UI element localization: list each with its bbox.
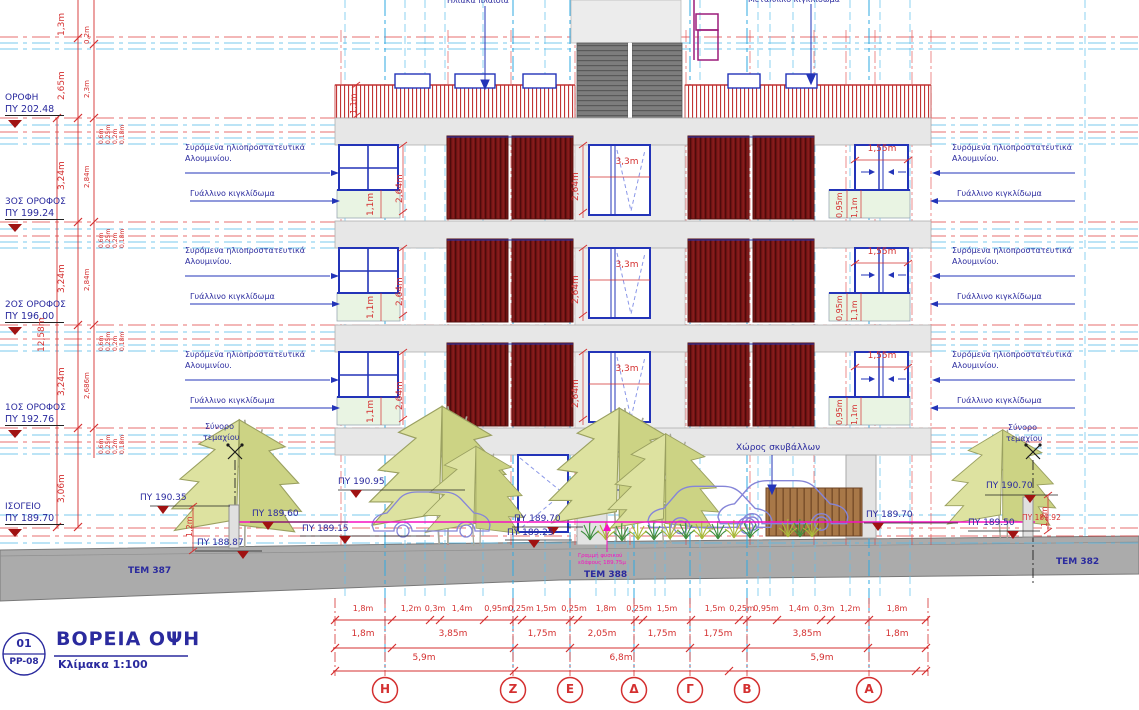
spot-level: ΠΥ 190.95 (338, 478, 385, 487)
dim: 0,95m (753, 605, 779, 613)
dim-yard: 1,2m (186, 516, 194, 537)
dim: 1,8m (885, 630, 908, 639)
dim: 3,85m (793, 630, 822, 639)
level-elevation: ΠΥ 202.48 (5, 105, 64, 116)
dim-right-width: 1,55m (868, 145, 897, 154)
dim: 2,05m (588, 630, 617, 639)
dim: 0,25m (561, 605, 587, 613)
level-elevation: ΠΥ 199.24 (5, 209, 64, 220)
dim: 1,2m (401, 605, 422, 613)
annotation-sliding-louvers: Συρόμενα ηλιοπροστατευτικά (185, 247, 305, 255)
dim-center-width: 3,3m (615, 365, 638, 374)
dim: 1,8m (887, 605, 908, 613)
plot-label: ΤΕΜ 388 (584, 571, 627, 580)
annotation-glass-railing: Γυάλλινο κιγκλίδωμα (957, 397, 1042, 405)
boundary-label: Σύνορο (205, 423, 234, 431)
annotation-sliding-louvers: Συρόμενα ηλιοπροστατευτικά (185, 144, 305, 152)
dim-label: 3,06m (58, 474, 67, 503)
dim-label: 0,2m (84, 26, 91, 44)
ground-note: εδάφους 189.75μ (578, 561, 626, 567)
dim: 1,2m (840, 605, 861, 613)
sheet-code: PP-08 (9, 658, 38, 667)
level-name: ΙΣΟΓΕΙΟ (5, 503, 41, 512)
dim: 1,8m (353, 605, 374, 613)
axis-label: Α (857, 683, 881, 696)
level-name: 1ΟΣ ΟΡΟΦΟΣ (5, 404, 66, 413)
elevation-sheet: ΟΡΟΦΗ ΠΥ 202.48 3ΟΣ ΟΡΟΦΟΣ ΠΥ 199.24 2ΟΣ… (0, 0, 1139, 710)
dim: 6,8m (609, 654, 632, 663)
dim-rail-height: 1,1m (851, 197, 859, 218)
dim-label: 2,686m (84, 372, 91, 399)
annotation-sliding-louvers: Αλουμινίου. (952, 258, 999, 266)
spot-level: ΠΥ 189.70 (866, 511, 913, 520)
slab-dim: 0,18m (120, 435, 126, 454)
dim-rail-height: 1,1m (851, 300, 859, 321)
boundary-label: τεμαχίου (1006, 435, 1042, 443)
axis-label: Ζ (501, 683, 525, 696)
spot-level: ΠΥ 189.25 (507, 529, 554, 538)
detail-number: 01 (16, 638, 31, 650)
dim: 0,25m (508, 605, 534, 613)
spot-level: ΠΥ 189.60 (252, 510, 299, 519)
annotation-sliding-louvers: Συρόμενα ηλιοπροστατευτικά (952, 144, 1072, 152)
dim: 1,5m (536, 605, 557, 613)
level-elevation: ΠΥ 192.76 (5, 415, 64, 426)
dim: 1,5m (705, 605, 726, 613)
annotation-metal-railing: Μεταλλικό κιγκλίδωμα (748, 0, 840, 4)
dim-window-height: 2,64m (396, 277, 405, 306)
spot-level: ΠΥ 190.35 (140, 494, 187, 503)
annotation-glass-railing: Γυάλλινο κιγκλίδωμα (190, 190, 275, 198)
slab-dim: 0,18m (120, 125, 126, 144)
annotation-sliding-louvers: Αλουμινίου. (952, 155, 999, 163)
axis-label: Γ (678, 683, 702, 696)
dim: 5,9m (810, 654, 833, 663)
dim-rail-height: 1,1m (367, 400, 376, 423)
annotation-sliding-louvers: Αλουμινίου. (952, 362, 999, 370)
level-name: ΟΡΟΦΗ (5, 94, 38, 103)
dim-center-width: 3,3m (615, 261, 638, 270)
boundary-label: Σύνορο (1008, 424, 1037, 432)
level-elevation: ΠΥ 196.00 (5, 312, 64, 323)
annotation-sliding-louvers: Συρόμενα ηλιοπροστατευτικά (952, 247, 1072, 255)
spot-level: ΠΥ 189.15 (302, 525, 349, 534)
spot-level: ΠΥ 189.70 (514, 515, 561, 524)
dim: 1,8m (351, 630, 374, 639)
annotation-garbage-area: Χώρος σκυβάλλων (736, 444, 820, 453)
dim-rail-height: 0,95m (836, 192, 844, 218)
dim-label: 3,24m (58, 367, 67, 396)
dim-center-height: 2,64m (572, 379, 581, 408)
plot-label: ΤΕΜ 387 (128, 567, 171, 576)
spot-level: ΠΥ 190.70 (986, 482, 1033, 491)
level-name: 3ΟΣ ΟΡΟΦΟΣ (5, 198, 66, 207)
slab-dim: 0,18m (120, 332, 126, 351)
dim-rail-height: 0,95m (836, 295, 844, 321)
dim: 1,75m (528, 630, 557, 639)
ground-note: Γραμμή φυσικού (578, 554, 622, 560)
dim-rail-height: 1,1m (851, 404, 859, 425)
dim-right-width: 1,55m (868, 352, 897, 361)
axis-label: Δ (622, 683, 646, 696)
dim: 3,85m (439, 630, 468, 639)
dim-yard: 1,2m (1041, 506, 1049, 527)
spot-level: ΠΥ 188.87 (197, 539, 244, 548)
dim: 0,25m (729, 605, 755, 613)
boundary-label: τεμαχίου (203, 434, 239, 442)
spot-level: ΠΥ 189.50 (968, 519, 1015, 528)
dim-total-label: 12,58m (38, 317, 47, 352)
level-name: 2ΟΣ ΟΡΟΦΟΣ (5, 301, 66, 310)
dim-right-width: 1,55m (868, 248, 897, 257)
dim-label: 2,3m (84, 80, 91, 98)
annotation-sliding-louvers: Αλουμινίου. (185, 155, 232, 163)
annotation-glass-railing: Γυάλλινο κιγκλίδωμα (957, 190, 1042, 198)
dim: 1,5m (657, 605, 678, 613)
dim-label: 2,84m (84, 269, 91, 291)
annotation-sliding-louvers: Αλουμινίου. (185, 362, 232, 370)
dim: 0,3m (425, 605, 446, 613)
dim-label: 1,3m (58, 13, 67, 36)
dim: 1,75m (704, 630, 733, 639)
dim-label: 2,65m (58, 71, 67, 100)
roof-railing-height: 1,1m (350, 93, 358, 114)
dim-center-width: 3,3m (615, 158, 638, 167)
dim: 1,8m (596, 605, 617, 613)
dim-label: 2,84m (84, 166, 91, 188)
plot-label: ΤΕΜ 382 (1056, 558, 1099, 567)
axis-label: Β (735, 683, 759, 696)
dim-rail-height: 1,1m (367, 193, 376, 216)
annotation-glass-railing: Γυάλλινο κιγκλίδωμα (957, 293, 1042, 301)
dim: 1,75m (648, 630, 677, 639)
dim: 1,4m (789, 605, 810, 613)
dim-rail-height: 1,1m (367, 296, 376, 319)
level-elevation: ΠΥ 189.70 (5, 514, 64, 525)
drawing-title: ΒΟΡΕΙΑ ΟΨΗ (56, 630, 200, 650)
dim-window-height: 2,64m (396, 381, 405, 410)
floor-level-markers (8, 120, 22, 537)
dim: 0,95m (484, 605, 510, 613)
dim-window-height: 2,64m (396, 174, 405, 203)
slab-dim: 0,18m (120, 229, 126, 248)
dim-rail-height: 0,95m (836, 399, 844, 425)
dim-center-height: 2,64m (572, 275, 581, 304)
roof-flue (694, 0, 718, 60)
axis-label: Ε (558, 683, 582, 696)
annotation-solar-panels: Ηλιακά πλαίσια (447, 0, 509, 5)
dim: 0,25m (626, 605, 652, 613)
axis-label: Η (373, 683, 397, 696)
annotation-sliding-louvers: Συρόμενα ηλιοπροστατευτικά (952, 351, 1072, 359)
dim-label: 3,24m (58, 161, 67, 190)
dim-label: 3,24m (58, 264, 67, 293)
annotation-glass-railing: Γυάλλινο κιγκλίδωμα (190, 397, 275, 405)
annotation-glass-railing: Γυάλλινο κιγκλίδωμα (190, 293, 275, 301)
dim: 0,3m (814, 605, 835, 613)
annotation-sliding-louvers: Συρόμενα ηλιοπροστατευτικά (185, 351, 305, 359)
dim-center-height: 2,64m (572, 172, 581, 201)
annotation-sliding-louvers: Αλουμινίου. (185, 258, 232, 266)
dim: 1,4m (452, 605, 473, 613)
drawing-scale: Κλίμακα 1:100 (58, 659, 148, 671)
dim: 5,9m (412, 654, 435, 663)
